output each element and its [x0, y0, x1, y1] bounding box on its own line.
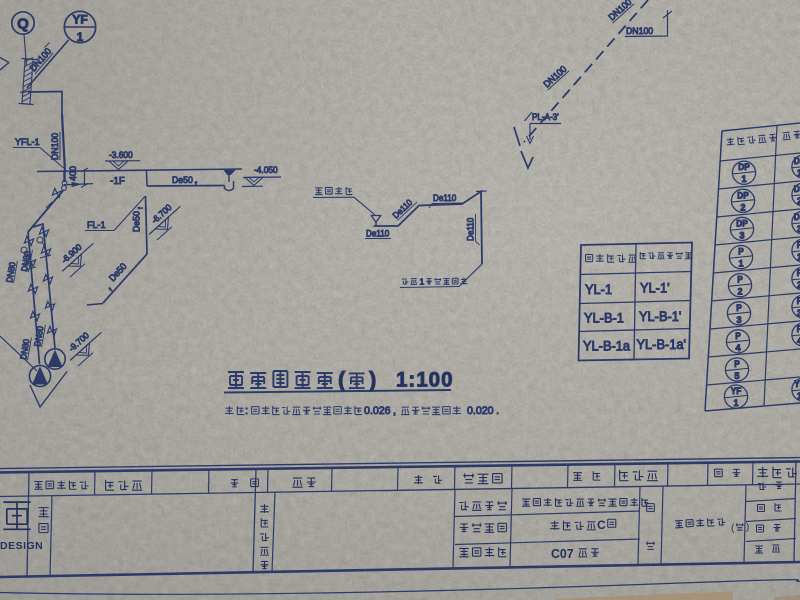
svg-text:-3.600: -3.600: [109, 150, 133, 160]
svg-text:YF: YF: [72, 13, 87, 27]
svg-text:5: 5: [734, 371, 739, 381]
svg-text:3: 3: [736, 315, 741, 325]
svg-text:YL-B-1': YL-B-1': [639, 309, 681, 324]
svg-text:YL-B-1a: YL-B-1a: [583, 338, 631, 353]
svg-text:1: 1: [738, 259, 743, 269]
svg-text:De110: De110: [465, 217, 475, 241]
svg-text:-4.050: -4.050: [254, 165, 278, 175]
svg-text:YFL-1: YFL-1: [15, 137, 40, 147]
svg-text:): ): [369, 367, 376, 392]
svg-text:f: f: [138, 207, 145, 209]
svg-text:P: P: [737, 274, 743, 284]
svg-text:PL-A-3': PL-A-3': [532, 112, 559, 122]
svg-text:): ): [746, 522, 749, 533]
svg-text:DN100: DN100: [626, 26, 653, 36]
svg-text:1: 1: [741, 174, 746, 184]
svg-text:YL-B-1: YL-B-1: [584, 310, 624, 325]
svg-text:400: 400: [68, 166, 78, 181]
svg-text:DP: DP: [794, 184, 800, 194]
svg-text:YL-1': YL-1': [640, 280, 670, 295]
svg-text:,: ,: [393, 405, 396, 417]
svg-text:YL-B-1a': YL-B-1a': [637, 337, 686, 352]
svg-text:YF: YF: [794, 379, 800, 389]
svg-text:3: 3: [739, 230, 744, 240]
svg-text:FL-1: FL-1: [87, 220, 106, 230]
svg-text:DP: DP: [738, 162, 750, 172]
svg-text:0.020: 0.020: [467, 405, 494, 417]
svg-text:f: f: [195, 181, 197, 188]
svg-text:4: 4: [735, 343, 740, 353]
svg-text:De110: De110: [366, 228, 390, 238]
svg-text:1: 1: [733, 398, 738, 408]
svg-text:DP: DP: [794, 156, 800, 166]
svg-text:DESIGN: DESIGN: [0, 540, 43, 552]
svg-text:P: P: [735, 331, 741, 341]
svg-text:-1F: -1F: [110, 176, 125, 187]
svg-text:P: P: [736, 302, 742, 312]
svg-text:(: (: [338, 367, 346, 392]
svg-text:P: P: [734, 359, 740, 369]
svg-text:1: 1: [77, 30, 84, 44]
svg-text:DP: DP: [737, 190, 749, 200]
svg-text:DP: DP: [736, 218, 748, 228]
svg-text:YL-1: YL-1: [585, 282, 612, 297]
svg-text:YF: YF: [731, 386, 742, 396]
svg-text:1:100: 1:100: [396, 368, 454, 391]
svg-text:C07: C07: [551, 547, 574, 561]
svg-text:2: 2: [740, 202, 745, 212]
svg-text:DN100: DN100: [50, 133, 60, 160]
svg-text:P: P: [738, 246, 744, 256]
svg-text:C: C: [597, 518, 606, 532]
svg-text:De50: De50: [131, 211, 141, 232]
svg-text:1: 1: [420, 277, 425, 287]
svg-text::: :: [245, 405, 248, 417]
svg-text:DP: DP: [794, 212, 800, 222]
svg-text:Q: Q: [17, 16, 29, 33]
svg-text:De110: De110: [433, 193, 457, 203]
svg-text:2: 2: [737, 287, 742, 297]
svg-text:0.026: 0.026: [364, 405, 391, 417]
svg-text:De50: De50: [172, 175, 193, 185]
svg-text:.: .: [496, 405, 499, 417]
